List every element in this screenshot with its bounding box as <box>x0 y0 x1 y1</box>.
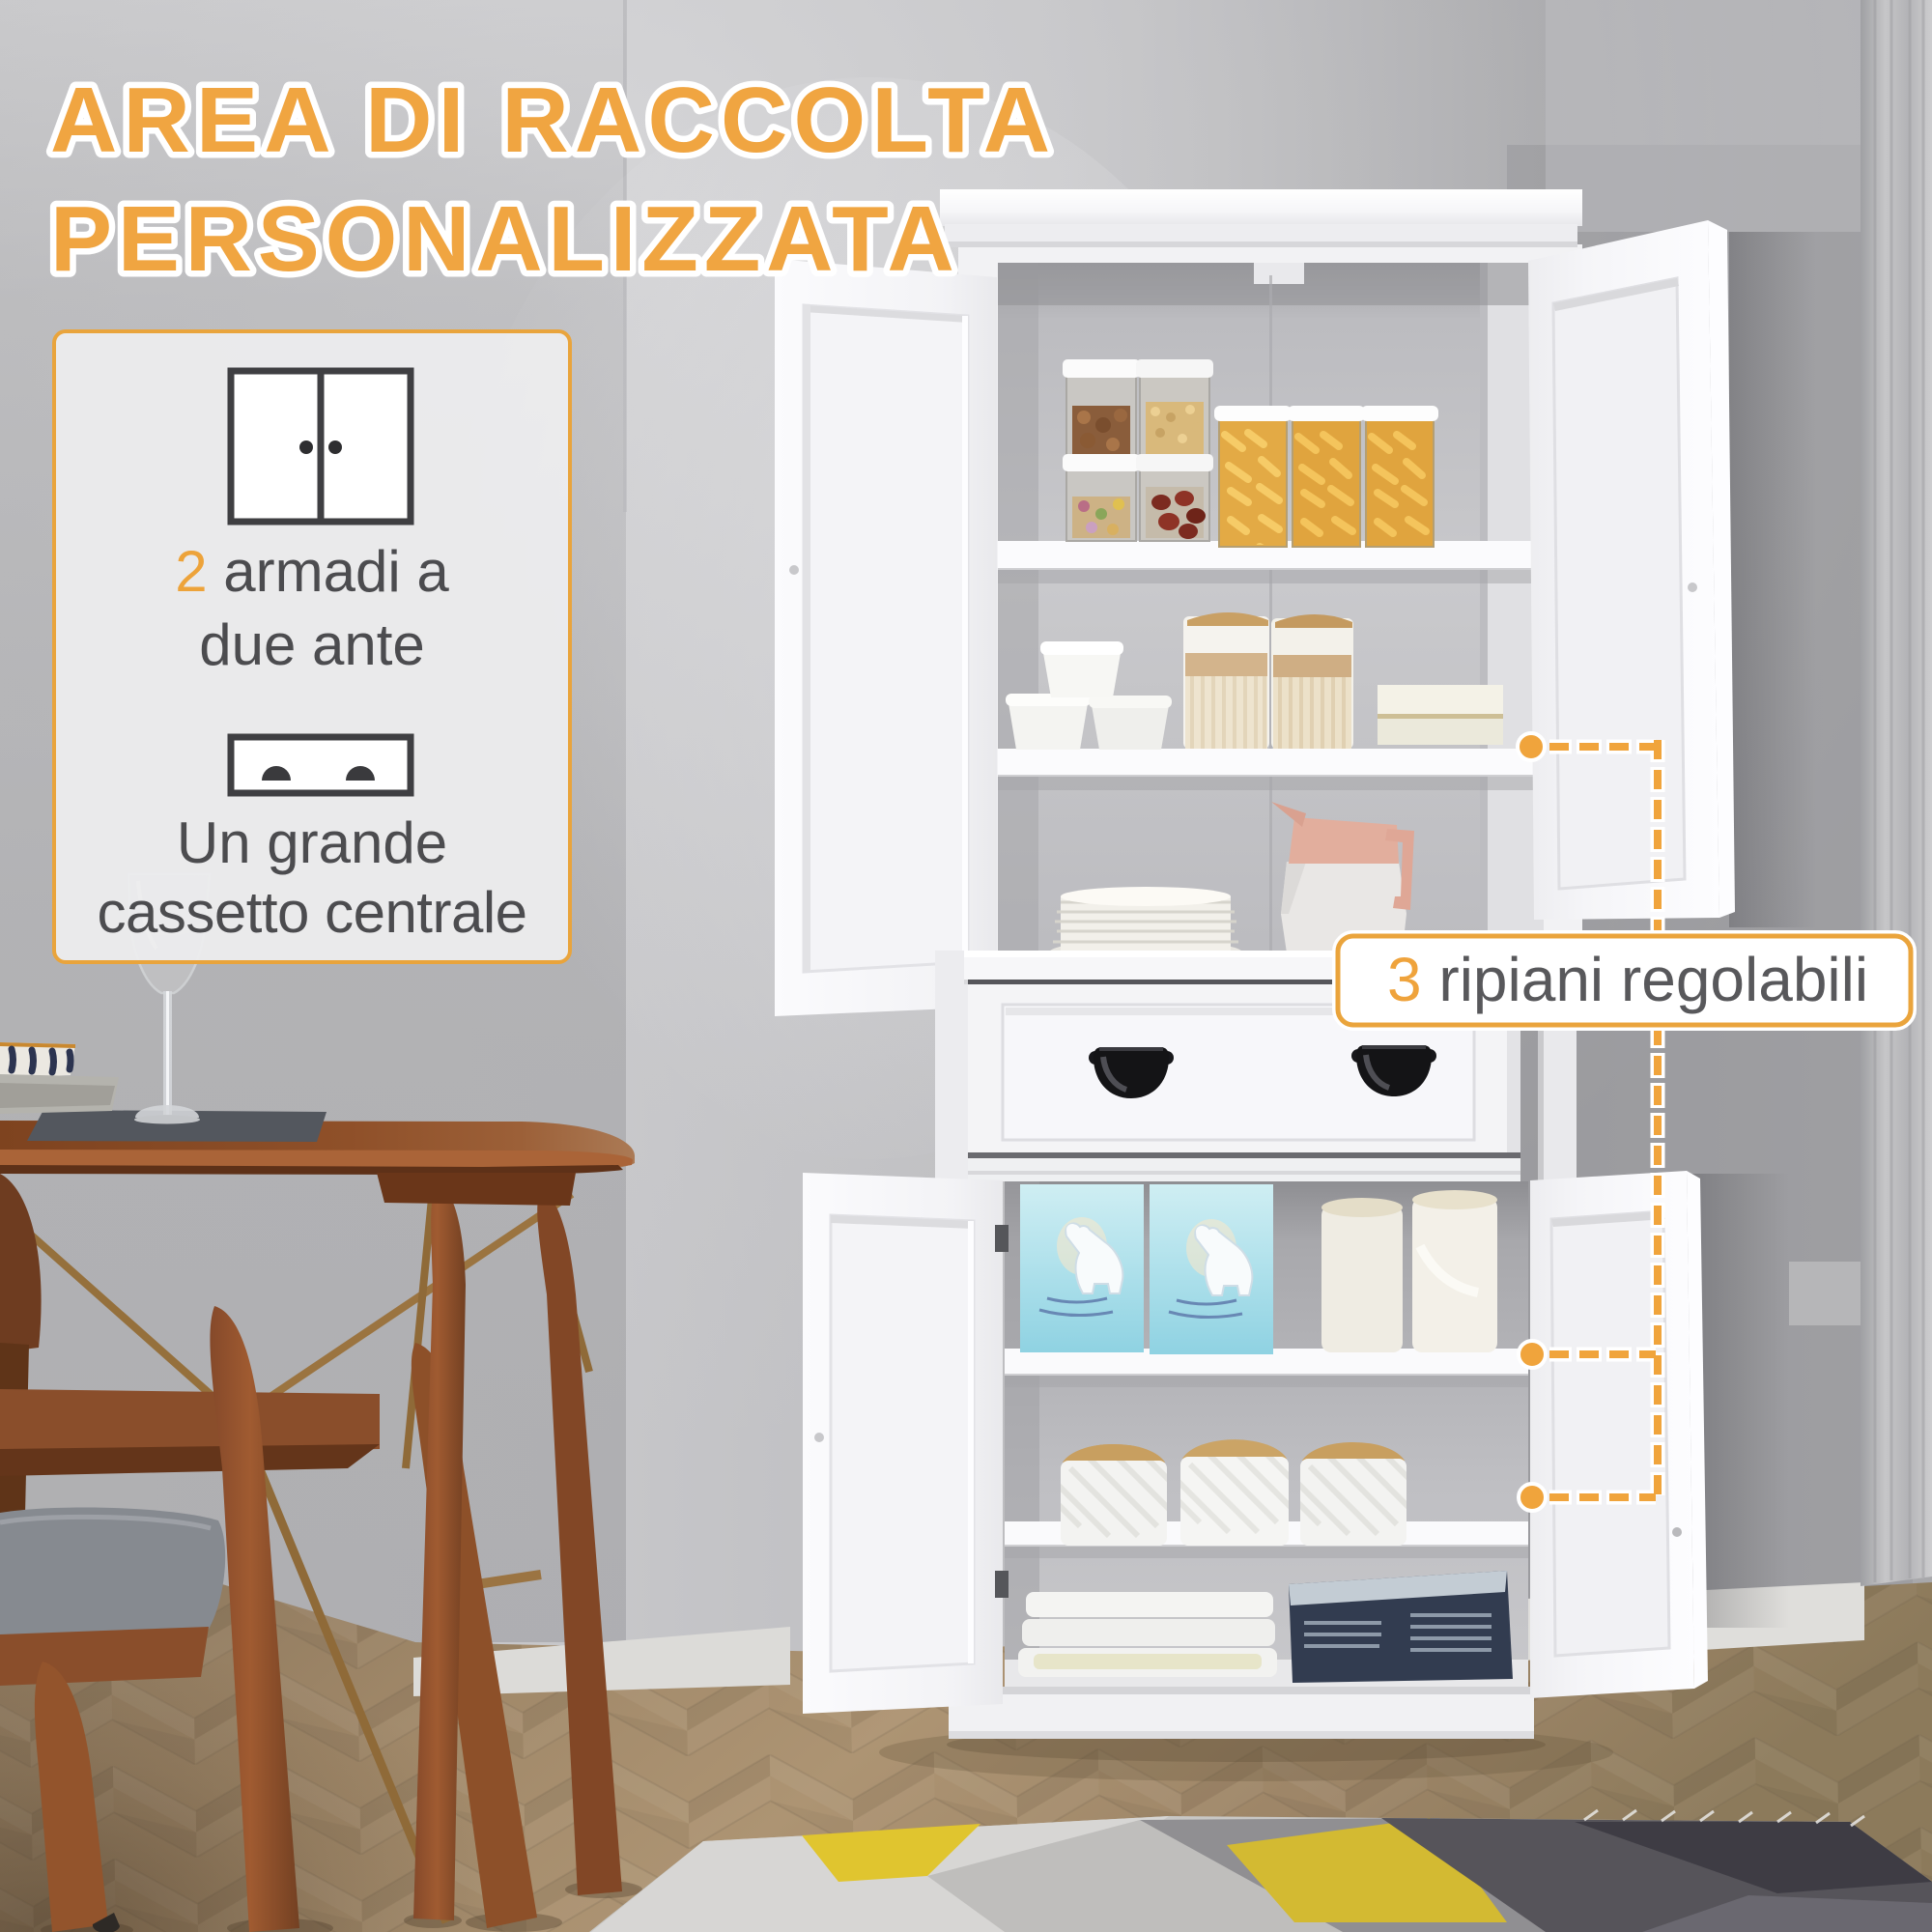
svg-text:Un grande: Un grande <box>177 810 447 875</box>
svg-text:AREA DI RACCOLTA: AREA DI RACCOLTA <box>50 69 1056 172</box>
svg-text:2 armadi a: 2 armadi a <box>175 539 449 604</box>
svg-text:due ante: due ante <box>199 612 425 677</box>
svg-text:3 ripiani regolabili: 3 ripiani regolabili <box>1387 945 1868 1014</box>
svg-text:PERSONALIZZATA: PERSONALIZZATA <box>50 187 960 291</box>
svg-text:cassetto centrale: cassetto centrale <box>97 880 526 945</box>
